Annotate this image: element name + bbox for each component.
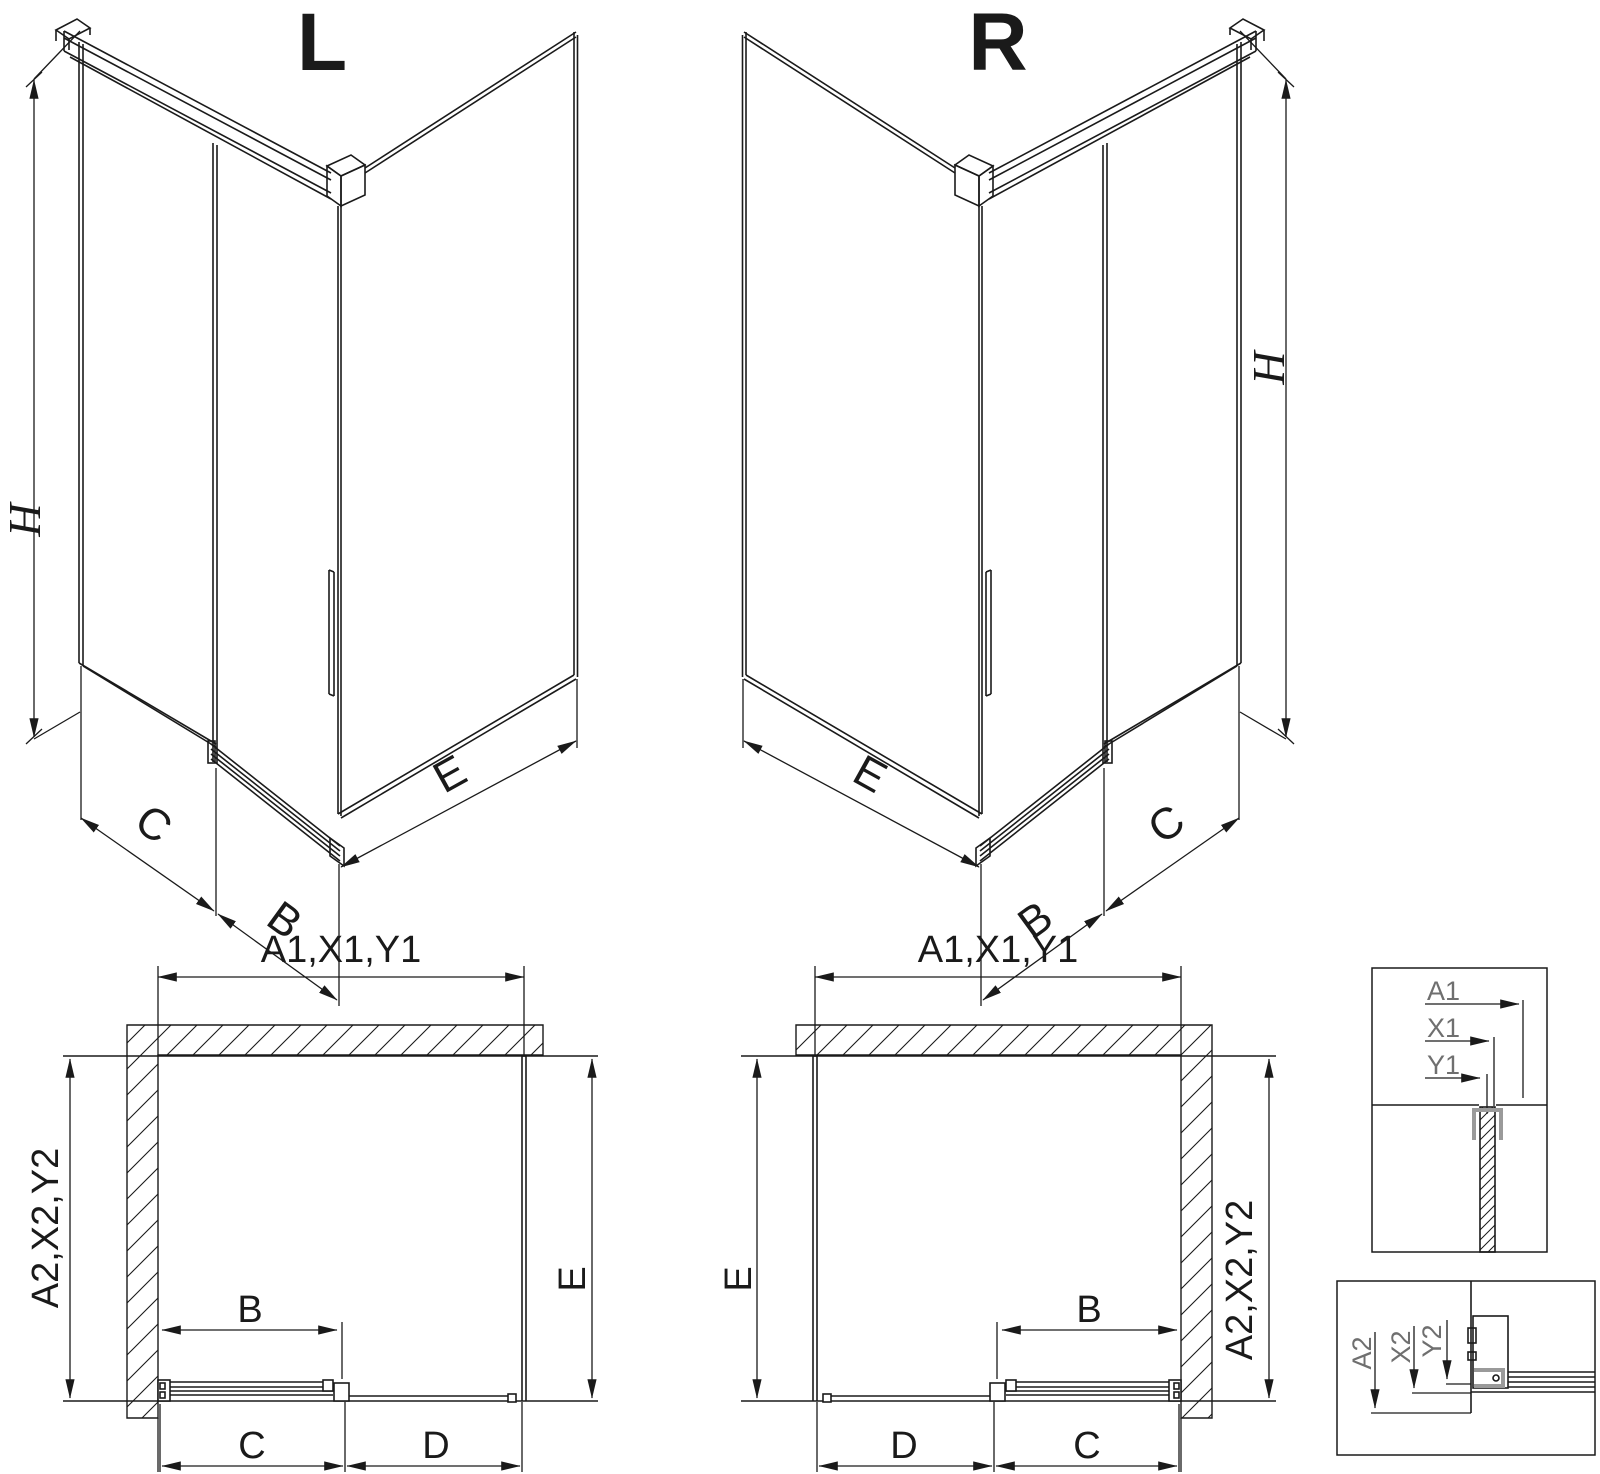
plan-right-track <box>823 1380 1181 1402</box>
dim-label-e-plan-left: E <box>552 1266 594 1291</box>
dim-label-e-right-iso: E <box>845 746 894 803</box>
detail-label-y1: Y1 <box>1427 1050 1460 1080</box>
plan-left-track <box>158 1380 516 1402</box>
detail-label-x2: X2 <box>1386 1330 1416 1363</box>
plan-right-wall-section <box>796 1025 1212 1418</box>
detail-bottom-view: A2 X2 Y2 <box>1337 1281 1595 1455</box>
dim-label-h-right: H <box>1243 349 1294 386</box>
dim-label-c-plan-left: C <box>238 1425 265 1467</box>
dim-label-a2-plan-left: A2,X2,Y2 <box>25 1148 67 1309</box>
plan-left-view: A1,X1,Y1 A2,X2,Y2 E B C D <box>25 929 598 1472</box>
technical-drawing-page: L H C B E R H C B E <box>0 0 1600 1474</box>
plan-right-view: A1,X1,Y1 A2,X2,Y2 E B D C <box>718 929 1276 1472</box>
dim-label-b-plan-left: B <box>237 1289 262 1331</box>
dim-label-e-plan-right: E <box>718 1266 760 1291</box>
detail-bottom-track-section <box>1468 1316 1595 1392</box>
plan-left-wall-section <box>127 1025 543 1418</box>
dim-label-b-plan-right: B <box>1076 1289 1101 1331</box>
detail-label-a1: A1 <box>1427 976 1460 1006</box>
detail-label-y2: Y2 <box>1417 1324 1447 1357</box>
dim-label-c-right-iso: C <box>1139 795 1194 853</box>
dim-label-a1-plan-right: A1,X1,Y1 <box>918 929 1079 971</box>
detail-top-frame <box>1372 968 1547 1252</box>
dim-label-d-plan-left: D <box>422 1425 449 1467</box>
detail-top-view: A1 X1 Y1 <box>1372 968 1547 1252</box>
view-label-l: L <box>297 0 347 88</box>
iso-right-geometry <box>743 19 1295 1006</box>
iso-left-geometry <box>26 19 578 1006</box>
dim-label-d-plan-right: D <box>890 1425 917 1467</box>
dim-label-c-plan-right: C <box>1073 1425 1100 1467</box>
dim-label-a2-plan-right: A2,X2,Y2 <box>1219 1200 1261 1361</box>
detail-top-wall <box>1372 1105 1547 1252</box>
view-label-r: R <box>968 0 1027 88</box>
iso-left-view: L H C B E <box>0 0 578 1006</box>
detail-label-x1: X1 <box>1427 1013 1460 1043</box>
shower-enclosure-diagram: L H C B E R H C B E <box>0 0 1600 1474</box>
dim-label-a1-plan-left: A1,X1,Y1 <box>261 929 422 971</box>
detail-label-a2: A2 <box>1347 1336 1377 1369</box>
dim-label-e-left-iso: E <box>425 746 474 803</box>
dim-label-c-left-iso: C <box>126 795 181 853</box>
iso-right-view: R H C B E <box>743 0 1295 1006</box>
dim-label-h-left: H <box>0 501 50 538</box>
